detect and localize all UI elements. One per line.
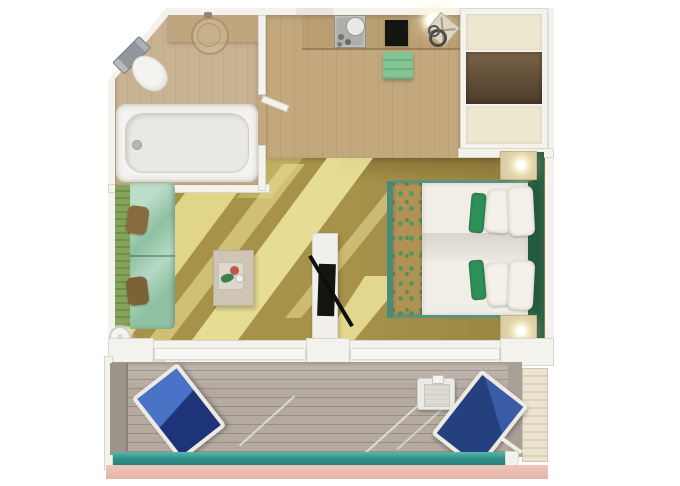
slatted-divider-right [522,368,548,462]
bathtub [116,104,258,182]
side-table [417,378,455,410]
vanity-faucet [204,12,212,18]
entry-door [296,8,334,15]
green-bench [383,52,413,79]
sofa-pillow [125,276,149,306]
tray-cup [235,274,244,283]
sofa-backrest [115,185,130,327]
tray-glass [337,42,342,47]
bed-center-crease [422,233,528,261]
bed-runner [393,183,422,315]
sofa-pillow [125,205,150,236]
vanity-basin-bowl [197,23,221,47]
ice-bucket [346,17,365,36]
floor-plan [0,0,680,486]
bathroom-wall-upper [258,15,266,95]
side-table-top [424,384,450,407]
bathtub-basin [125,113,249,173]
sofa-cushion-seam [130,255,175,257]
sliding-door-left [154,348,306,360]
desk-pad [385,20,408,46]
sliding-door-right [350,348,500,360]
bedside-lamp [516,326,526,336]
bedside-lamp [516,160,526,170]
privacy-divider-left [110,363,128,455]
desk-chair-base-inner [428,25,440,37]
wardrobe-shelf-bottom [466,106,542,144]
bed-pillow [507,259,536,310]
bed-pillow [507,185,536,236]
outer-ledge [106,465,548,479]
tray-glass [338,34,344,40]
bathtub-drain [132,140,142,150]
tray-glass [345,39,351,45]
side-table-kettle [432,375,444,384]
wardrobe-open-closet [466,52,542,104]
bathroom-wall-lower [258,145,266,191]
wardrobe-shelf-top [466,14,542,50]
